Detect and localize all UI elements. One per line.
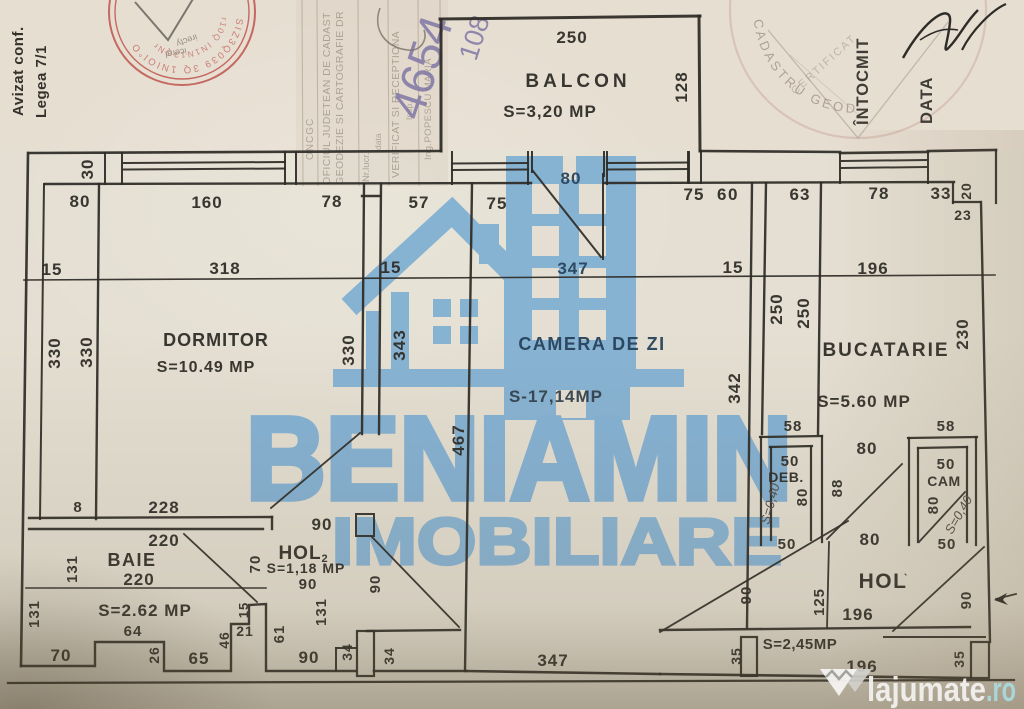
svg-text:250: 250 [556,28,587,47]
svg-text:data: data [373,133,383,150]
svg-text:S=3,20 MP: S=3,20 MP [503,102,597,121]
svg-text:250: 250 [767,293,786,324]
svg-text:250: 250 [794,297,813,328]
svg-text:75: 75 [684,185,705,204]
svg-text:15: 15 [381,258,402,277]
svg-text:ONCGC: ONCGC [305,118,316,160]
svg-text:80: 80 [70,192,91,211]
svg-text:318: 318 [209,259,240,278]
svg-text:lajumate: lajumate [867,671,986,709]
svg-text:60: 60 [717,185,739,204]
svg-text:Legea 7/1: Legea 7/1 [33,45,50,118]
svg-text:OFICIUL JUDETEAN DE CADAST: OFICIUL JUDETEAN DE CADAST [321,12,333,185]
svg-text:BALCON: BALCON [525,71,630,92]
svg-text:57: 57 [409,193,430,212]
svg-text:78: 78 [322,192,343,211]
svg-text:15: 15 [723,258,744,277]
svg-text:ÎNTOCMIT: ÎNTOCMIT [853,38,872,126]
svg-text:128: 128 [672,71,691,102]
svg-text:Avizat conf.: Avizat conf. [10,26,27,116]
svg-text:75: 75 [487,194,508,213]
svg-text:160: 160 [191,193,222,212]
svg-text:Nr.lucr.: Nr.lucr. [361,152,372,182]
svg-text:30: 30 [78,159,97,180]
svg-text:347: 347 [557,259,588,278]
svg-text:15: 15 [42,260,63,279]
svg-text:80: 80 [561,169,582,188]
svg-text:.ro: .ro [986,671,1016,709]
svg-text:GEODEZIE SI CARTOGRAFIE DR: GEODEZIE SI CARTOGRAFIE DR [334,11,346,185]
svg-text:63: 63 [790,185,811,204]
svg-text:DATA: DATA [918,77,936,124]
